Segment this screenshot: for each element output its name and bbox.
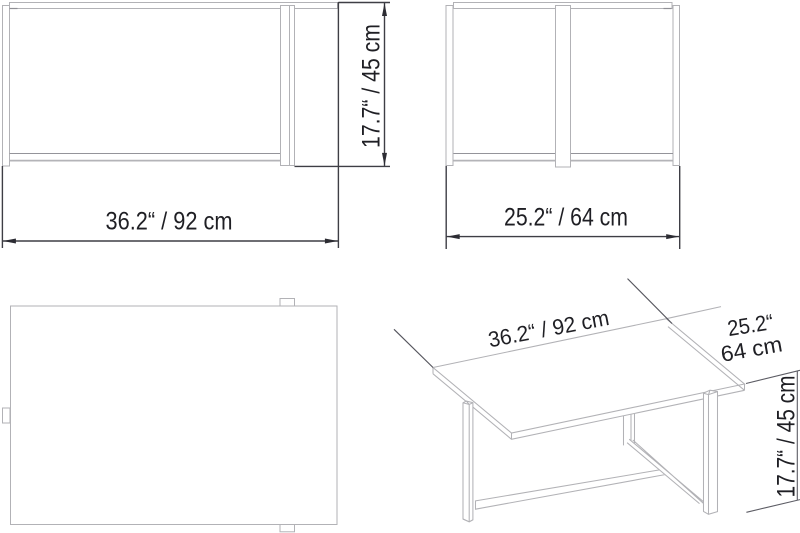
svg-text:36.2“ / 92 cm: 36.2“ / 92 cm bbox=[106, 208, 233, 236]
svg-text:17.7“ / 45 cm: 17.7“ / 45 cm bbox=[773, 376, 800, 498]
svg-text:25.2“ / 64 cm: 25.2“ / 64 cm bbox=[504, 204, 628, 232]
svg-text:17.7“ / 45 cm: 17.7“ / 45 cm bbox=[358, 24, 386, 148]
